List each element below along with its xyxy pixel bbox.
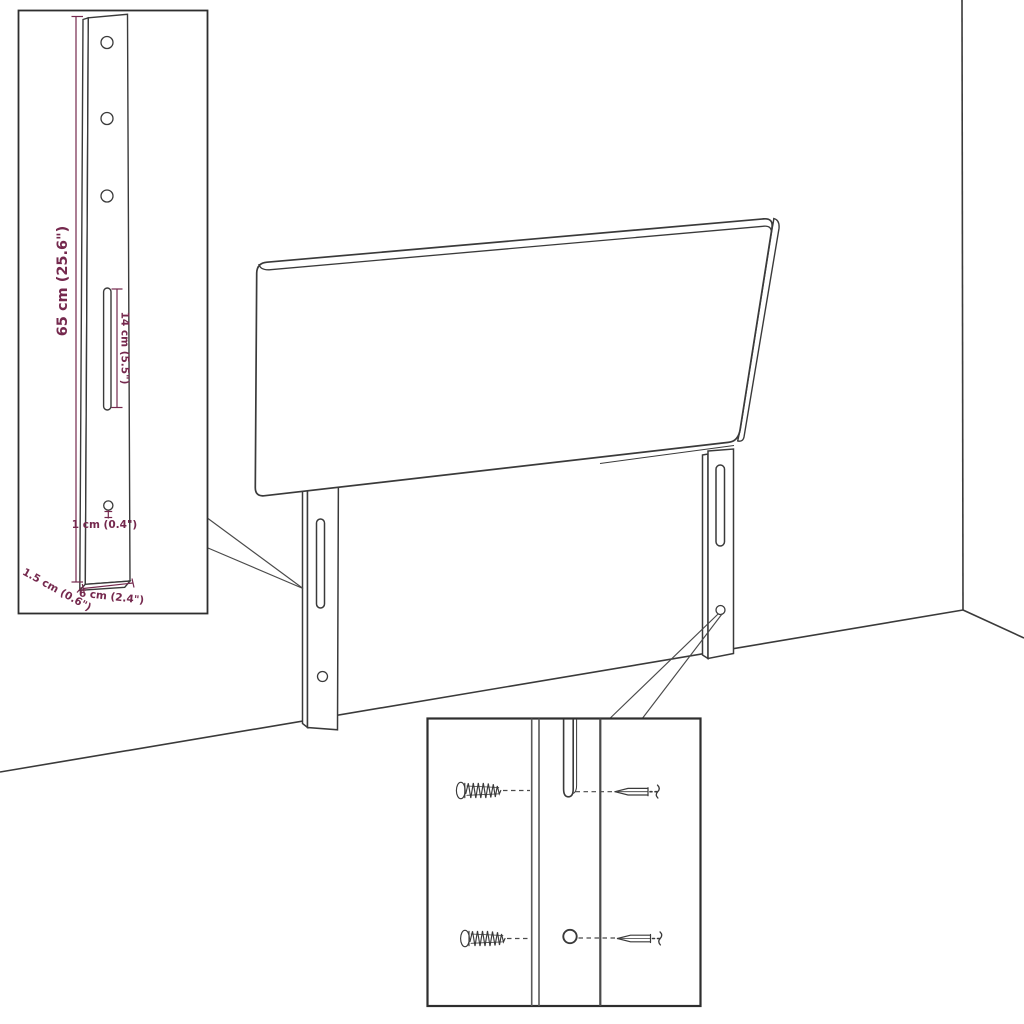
floor-line-right <box>963 610 1024 638</box>
right-leg-slot <box>716 465 725 546</box>
dimension-hole-label: 1 cm (0.4") <box>72 519 137 531</box>
bracket-drawing <box>80 14 130 590</box>
screw-inset-leader-right <box>642 614 722 719</box>
bracket-small-hole <box>104 501 113 510</box>
headboard-panel <box>255 219 779 496</box>
bracket-detail-inset: 65 cm (25.6") 14 cm (5.5") 1 cm (0.4") 1… <box>19 11 208 614</box>
left-leg-hole <box>318 672 328 682</box>
bracket-hole-3 <box>101 190 113 202</box>
headboard-front-face <box>255 219 772 496</box>
dimension-slot-label: 14 cm (5.5") <box>119 312 131 385</box>
magnified-hole <box>563 930 576 943</box>
headboard-assembly-diagram: 65 cm (25.6") 14 cm (5.5") 1 cm (0.4") 1… <box>0 0 1024 1024</box>
wall-corner-line <box>962 0 963 610</box>
headboard-right-leg <box>703 449 734 659</box>
bracket-slot <box>104 288 111 410</box>
callout-leader-lines <box>208 519 722 719</box>
bracket-hole-2 <box>101 113 113 125</box>
screw-detail-inset <box>428 719 701 1007</box>
bracket-hole-1 <box>101 37 113 49</box>
headboard-left-leg <box>303 453 339 730</box>
product-diagram-canvas: 65 cm (25.6") 14 cm (5.5") 1 cm (0.4") 1… <box>0 0 1024 1024</box>
dimension-height-label: 65 cm (25.6") <box>55 226 71 337</box>
right-leg-hole <box>716 606 725 615</box>
left-leg-slot <box>317 519 325 608</box>
